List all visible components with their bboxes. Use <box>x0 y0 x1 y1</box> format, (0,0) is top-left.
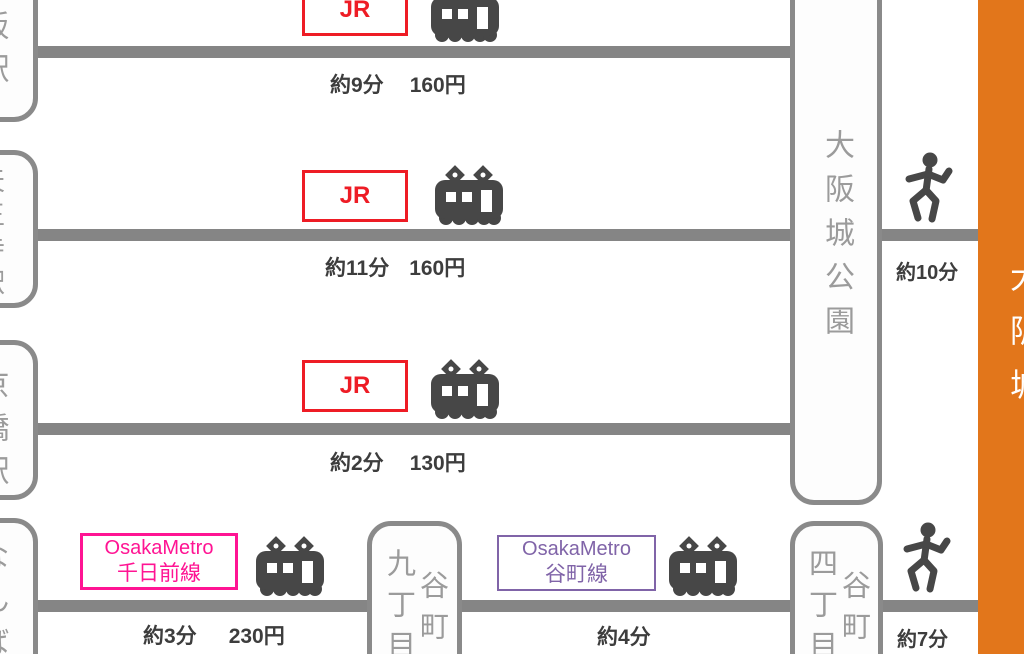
train-icon <box>434 165 504 229</box>
fare-label: 160円 <box>410 69 466 99</box>
walk-2-facts: 約7分 <box>897 623 948 652</box>
station-label: 大阪駅 <box>0 0 6 96</box>
station-label: なんば駅 <box>0 541 6 654</box>
jr-line-badge-2: JR <box>302 170 408 222</box>
time-label: 約2分 <box>330 447 384 477</box>
fare-label: 230円 <box>229 620 285 650</box>
station-box-origin-3: 京橋駅 <box>0 340 38 500</box>
route-line-jr-1 <box>38 46 790 58</box>
metro-line-name: 千日前線 <box>117 561 201 587</box>
route-line-jr-2 <box>38 229 790 241</box>
train-icon <box>430 359 500 423</box>
time-label: 約11分 <box>325 252 389 282</box>
station-box-osakajo-koen: 大阪城公園 <box>790 0 882 505</box>
train-icon <box>255 536 325 600</box>
metro-operator: OsakaMetro <box>105 536 214 561</box>
station-box-origin-1: 大阪駅 <box>0 0 38 122</box>
jr-label: JR <box>340 0 371 24</box>
time-label: 約10分 <box>896 256 958 285</box>
fare-label: 160円 <box>409 252 465 282</box>
station-label: 九丁目 谷町 <box>372 526 457 654</box>
jr-label: JR <box>340 372 371 400</box>
route-2-facts: 約11分 160円 <box>325 252 465 282</box>
route-5-facts: 約4分 <box>597 621 651 651</box>
jr-line-badge-1: JR <box>302 0 408 36</box>
metro-sennichimae-badge: OsakaMetro 千日前線 <box>80 533 238 590</box>
fare-label: 130円 <box>410 447 466 477</box>
station-box-origin-2: 天王寺駅 <box>0 150 38 308</box>
time-label: 約9分 <box>330 69 384 99</box>
access-map: 大阪駅 天王寺駅 京橋駅 なんば駅 大阪城公園 九丁目 谷町 四丁目 谷町 JR… <box>0 0 1024 654</box>
walking-person-icon <box>903 152 953 224</box>
route-4-facts: 約3分 230円 <box>143 620 285 650</box>
station-label: 大阪城公園 <box>821 129 851 349</box>
metro-line-name: 谷町線 <box>545 562 608 588</box>
station-box-tanimachi-4chome: 四丁目 谷町 <box>790 521 883 654</box>
train-icon <box>668 536 738 600</box>
walking-person-icon <box>901 522 951 594</box>
station-label: 天王寺駅 <box>0 167 4 303</box>
jr-label: JR <box>340 182 371 210</box>
destination-label: 大阪城 <box>1008 260 1024 422</box>
metro-operator: OsakaMetro <box>522 537 631 562</box>
metro-tanimachi-badge: OsakaMetro 谷町線 <box>497 535 656 591</box>
time-label: 約4分 <box>597 621 651 651</box>
jr-line-badge-3: JR <box>302 360 408 412</box>
station-box-tanimachi-9chome: 九丁目 谷町 <box>367 521 462 654</box>
route-3-facts: 約2分 130円 <box>330 447 466 477</box>
station-label: 四丁目 谷町 <box>795 526 878 654</box>
route-line-jr-3 <box>38 423 790 435</box>
train-icon <box>430 0 500 46</box>
time-label: 約7分 <box>897 623 948 652</box>
station-box-origin-4: なんば駅 <box>0 518 38 654</box>
route-1-facts: 約9分 160円 <box>330 69 466 99</box>
time-label: 約3分 <box>143 620 197 650</box>
walk-line-top <box>882 229 980 241</box>
station-label: 京橋駅 <box>0 369 6 498</box>
walk-1-facts: 約10分 <box>896 256 958 285</box>
